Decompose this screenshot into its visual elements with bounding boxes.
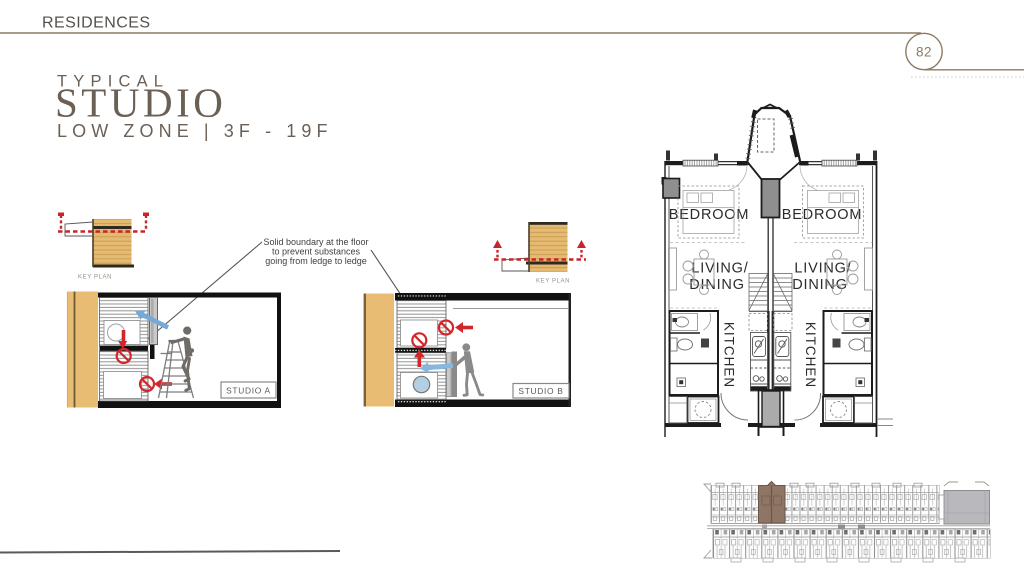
svg-text:82: 82: [916, 45, 932, 60]
svg-text:BEDROOM: BEDROOM: [669, 207, 750, 223]
svg-text:KITCHEN: KITCHEN: [722, 322, 737, 388]
svg-text:to prevent substances: to prevent substances: [272, 247, 361, 257]
svg-text:KEY PLAN: KEY PLAN: [78, 275, 112, 281]
svg-text:Solid boundary at the floor: Solid boundary at the floor: [263, 237, 368, 247]
svg-text:STUDIO: STUDIO: [55, 80, 226, 126]
svg-text:KEY PLAN: KEY PLAN: [536, 279, 570, 285]
svg-text:going from ledge to ledge: going from ledge to ledge: [265, 256, 367, 266]
svg-text:KITCHEN: KITCHEN: [803, 322, 818, 388]
svg-text:STUDIO A: STUDIO A: [226, 386, 271, 396]
svg-text:STUDIO B: STUDIO B: [518, 386, 563, 396]
svg-text:BEDROOM: BEDROOM: [782, 207, 863, 223]
svg-text:LOW ZONE | 3F - 19F: LOW ZONE | 3F - 19F: [57, 121, 333, 141]
svg-text:LIVING/: LIVING/: [691, 261, 748, 277]
svg-text:RESIDENCES: RESIDENCES: [42, 15, 151, 32]
svg-text:LIVING/: LIVING/: [794, 261, 851, 277]
